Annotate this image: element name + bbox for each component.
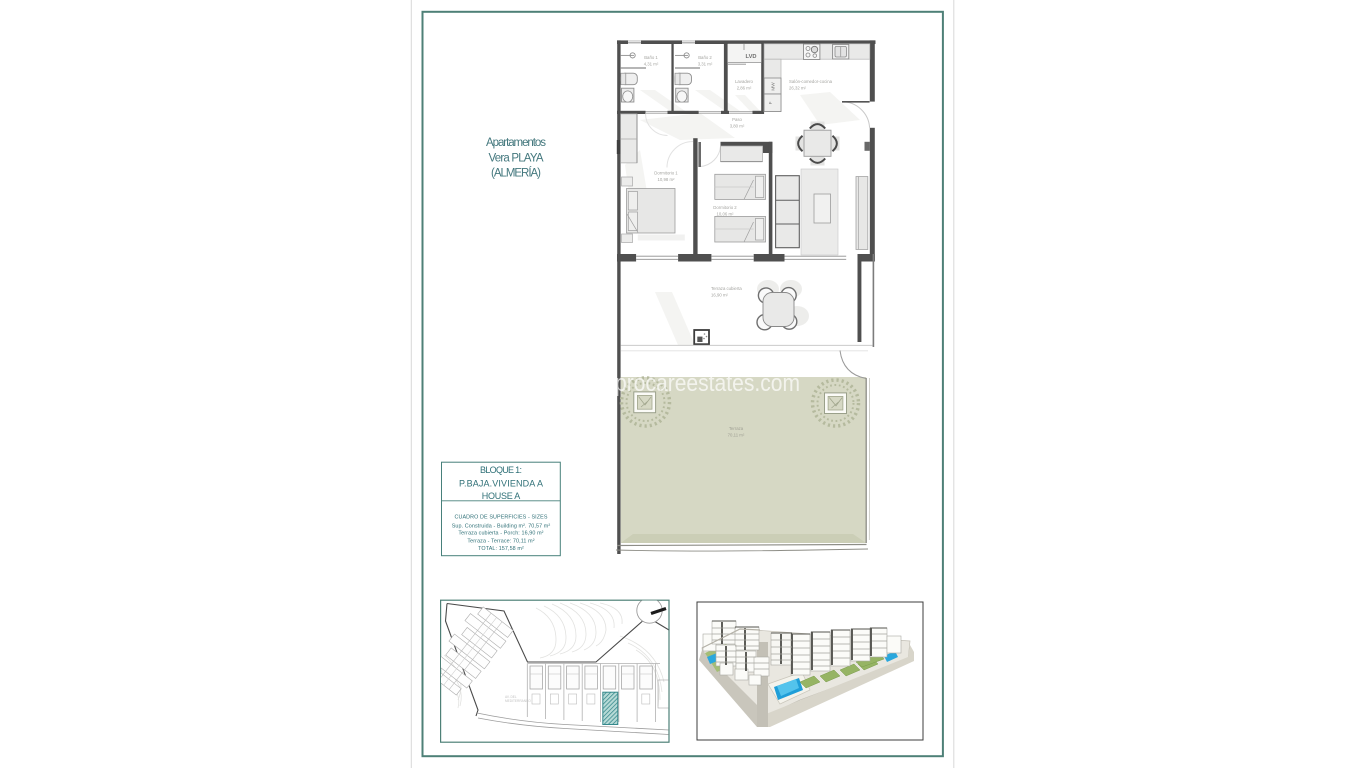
- svg-text:Paso: Paso: [732, 117, 742, 122]
- svg-text:TOTAL: 157,58 m²: TOTAL: 157,58 m²: [478, 546, 524, 552]
- svg-text:Dormitorio 1: Dormitorio 1: [654, 171, 678, 176]
- svg-text:Lavadero: Lavadero: [735, 79, 754, 84]
- svg-text:(ALMERÍA): (ALMERÍA): [491, 167, 541, 180]
- svg-text:Dormitorio 2: Dormitorio 2: [713, 205, 737, 210]
- svg-text:MW: MW: [771, 82, 776, 91]
- svg-text:Baño 1: Baño 1: [644, 55, 658, 60]
- svg-text:2,86 m²: 2,86 m²: [737, 85, 752, 90]
- svg-text:Terraza cubierta - Porch: 16,: Terraza cubierta - Porch: 16,90 m²: [458, 531, 543, 537]
- svg-text:4,31 m²: 4,31 m²: [644, 61, 659, 66]
- svg-text:Baño 2: Baño 2: [698, 55, 712, 60]
- svg-text:CUADRO DE SUPERFICIES - SIZES: CUADRO DE SUPERFICIES - SIZES: [454, 515, 547, 521]
- svg-text:HOUSE A: HOUSE A: [482, 491, 521, 501]
- svg-text:26,32 m²: 26,32 m²: [789, 85, 807, 90]
- svg-text:3,80 m²: 3,80 m²: [730, 123, 745, 128]
- svg-text:F: F: [768, 101, 773, 104]
- svg-text:70,11 m²: 70,11 m²: [728, 432, 745, 437]
- svg-text:Terraza - Terrace: 70,11 m²: Terraza - Terrace: 70,11 m²: [467, 539, 534, 545]
- svg-text:Salón-comedor-cocina: Salón-comedor-cocina: [789, 79, 833, 84]
- svg-text:MEDITERRANEO: MEDITERRANEO: [505, 699, 531, 703]
- svg-text:Vera PLAYA: Vera PLAYA: [489, 153, 544, 165]
- svg-text:10,98 m²: 10,98 m²: [658, 177, 676, 182]
- svg-text:P.BAJA.VIVIENDA A: P.BAJA.VIVIENDA A: [459, 479, 543, 489]
- svg-text:Terraza: Terraza: [729, 426, 744, 431]
- svg-text:Terraza cubierta: Terraza cubierta: [711, 286, 742, 291]
- svg-text:16,90 m²: 16,90 m²: [711, 292, 729, 297]
- svg-text:Sup. Construida - Building m²: Sup. Construida - Building m². 70,57 m²: [452, 524, 551, 530]
- svg-text:LVD: LVD: [746, 54, 757, 60]
- svg-text:Apartamentos: Apartamentos: [486, 137, 546, 149]
- svg-text:BLOQUE 1:: BLOQUE 1:: [480, 465, 522, 475]
- svg-text:3,31 m²: 3,31 m²: [698, 61, 713, 66]
- svg-text:procareestates.com: procareestates.com: [615, 370, 800, 397]
- svg-text:10,06 m²: 10,06 m²: [717, 211, 735, 216]
